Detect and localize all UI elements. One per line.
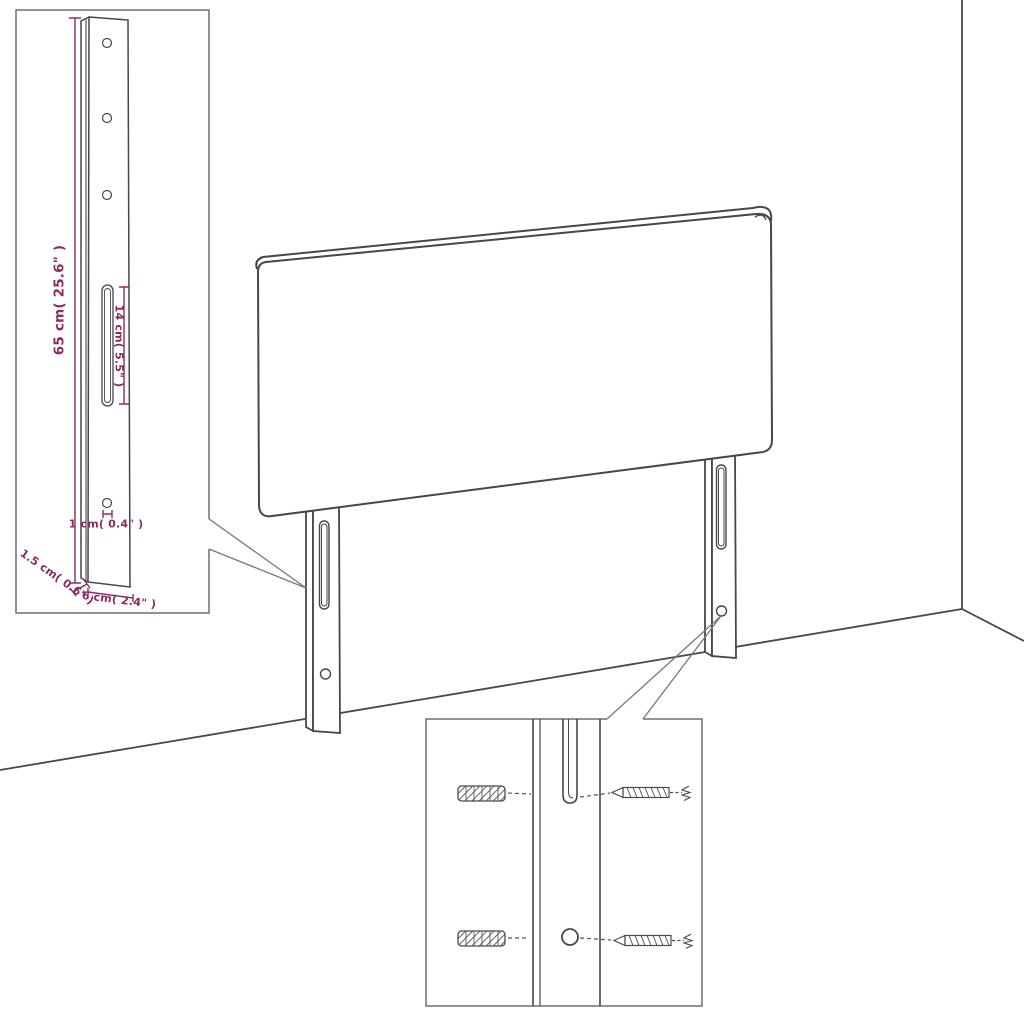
headboard-panel [256, 207, 772, 516]
headboard-front-face [258, 214, 772, 516]
left-leg-slot-inner [322, 524, 328, 606]
left-leg [306, 501, 340, 733]
floor-line-right [962, 609, 1024, 641]
dimension-label-slot-length: 14 cm( 5.5" ) [114, 305, 125, 388]
leg-detail-hole-bottom [103, 499, 112, 508]
leg-detail-hole-3 [103, 191, 112, 200]
left-leg-hole [321, 669, 331, 679]
product-diagram: 65 cm( 25.6" ) 14 cm( 5.5" ) 1 cm( 0.4" … [0, 0, 1024, 1024]
leg-detail-drawing [81, 17, 130, 587]
right-leg-slot-inner [719, 468, 725, 546]
callout-line-left [607, 616, 721, 719]
mounting-inset-background [426, 719, 702, 1006]
callout-line-lower [209, 549, 306, 588]
dimension-label-hole-diameter: 1 cm( 0.4" ) [69, 519, 144, 530]
right-leg-hole [717, 606, 727, 616]
wall-plug-icon [458, 931, 505, 946]
left-leg-side-face [306, 504, 313, 731]
leg-detail-hole-1 [103, 39, 112, 48]
leg-detail-hole-2 [103, 114, 112, 123]
diagram-canvas [0, 0, 1024, 1024]
dimension-label-leg-height: 65 cm( 25.6" ) [53, 245, 67, 355]
callout-right-leg [607, 616, 721, 719]
callout-line-upper [209, 519, 306, 588]
mounting-detail-inset [426, 719, 702, 1006]
callout-line-right [643, 616, 721, 719]
callout-left-inset [209, 519, 306, 588]
wall-plug-icon [458, 786, 505, 801]
leg-detail-slot-inner [105, 289, 111, 403]
